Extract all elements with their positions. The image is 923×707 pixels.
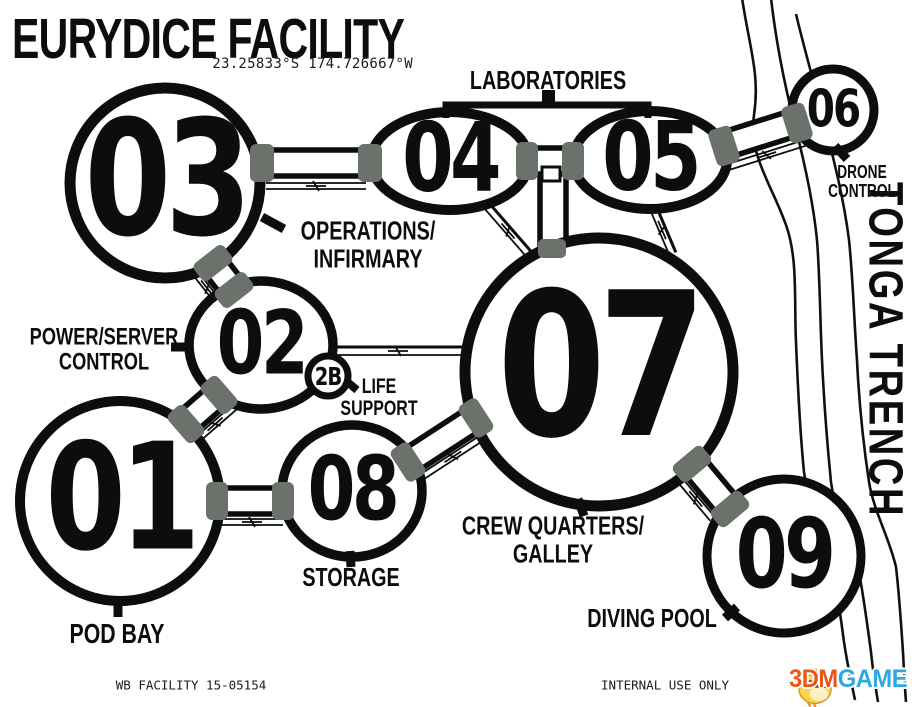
walkway-02-07 <box>334 346 469 356</box>
label-crew-quarters-galley: CREW QUARTERS/ GALLEY <box>462 512 644 567</box>
module-09-number: 09 <box>736 506 833 602</box>
module-05-number: 05 <box>602 111 698 206</box>
module-08-number: 08 <box>308 445 397 533</box>
module-2b-number: 2B <box>315 364 341 389</box>
corridor-03-04 <box>262 150 370 191</box>
label-storage: STORAGE <box>302 564 399 592</box>
footer-internal-use: INTERNAL USE ONLY <box>601 678 729 693</box>
label-life-support: LIFE SUPPORT <box>340 376 417 421</box>
label-diving-pool: DIVING POOL <box>587 605 717 633</box>
label-power-server-control: POWER/SERVER CONTROL <box>30 325 179 376</box>
module-02-number: 02 <box>217 299 306 387</box>
label-laboratories: LABORATORIES <box>470 67 626 95</box>
facility-map: EURYDICE FACILITY 23.25833°S 174.726667°… <box>0 0 923 707</box>
module-07-number: 07 <box>497 267 698 467</box>
footer-facility-id: WB FACILITY 15-05154 <box>116 678 267 693</box>
facility-coordinates: 23.25833°S 174.726667°W <box>212 56 413 72</box>
module-03-number: 03 <box>84 99 245 259</box>
module-04-number: 04 <box>402 112 498 207</box>
label-pod-bay: POD BAY <box>69 619 164 649</box>
label-operations-infirmary: OPERATIONS/ INFIRMARY <box>301 217 436 272</box>
module-01-number: 01 <box>45 424 194 572</box>
watermark-text: 3DMGAME <box>789 665 907 694</box>
module-06-number: 06 <box>807 83 859 135</box>
watermark-3dmgame: 3DMGAME <box>795 665 913 694</box>
label-tonga-trench: TONGA TRENCH <box>859 182 910 518</box>
